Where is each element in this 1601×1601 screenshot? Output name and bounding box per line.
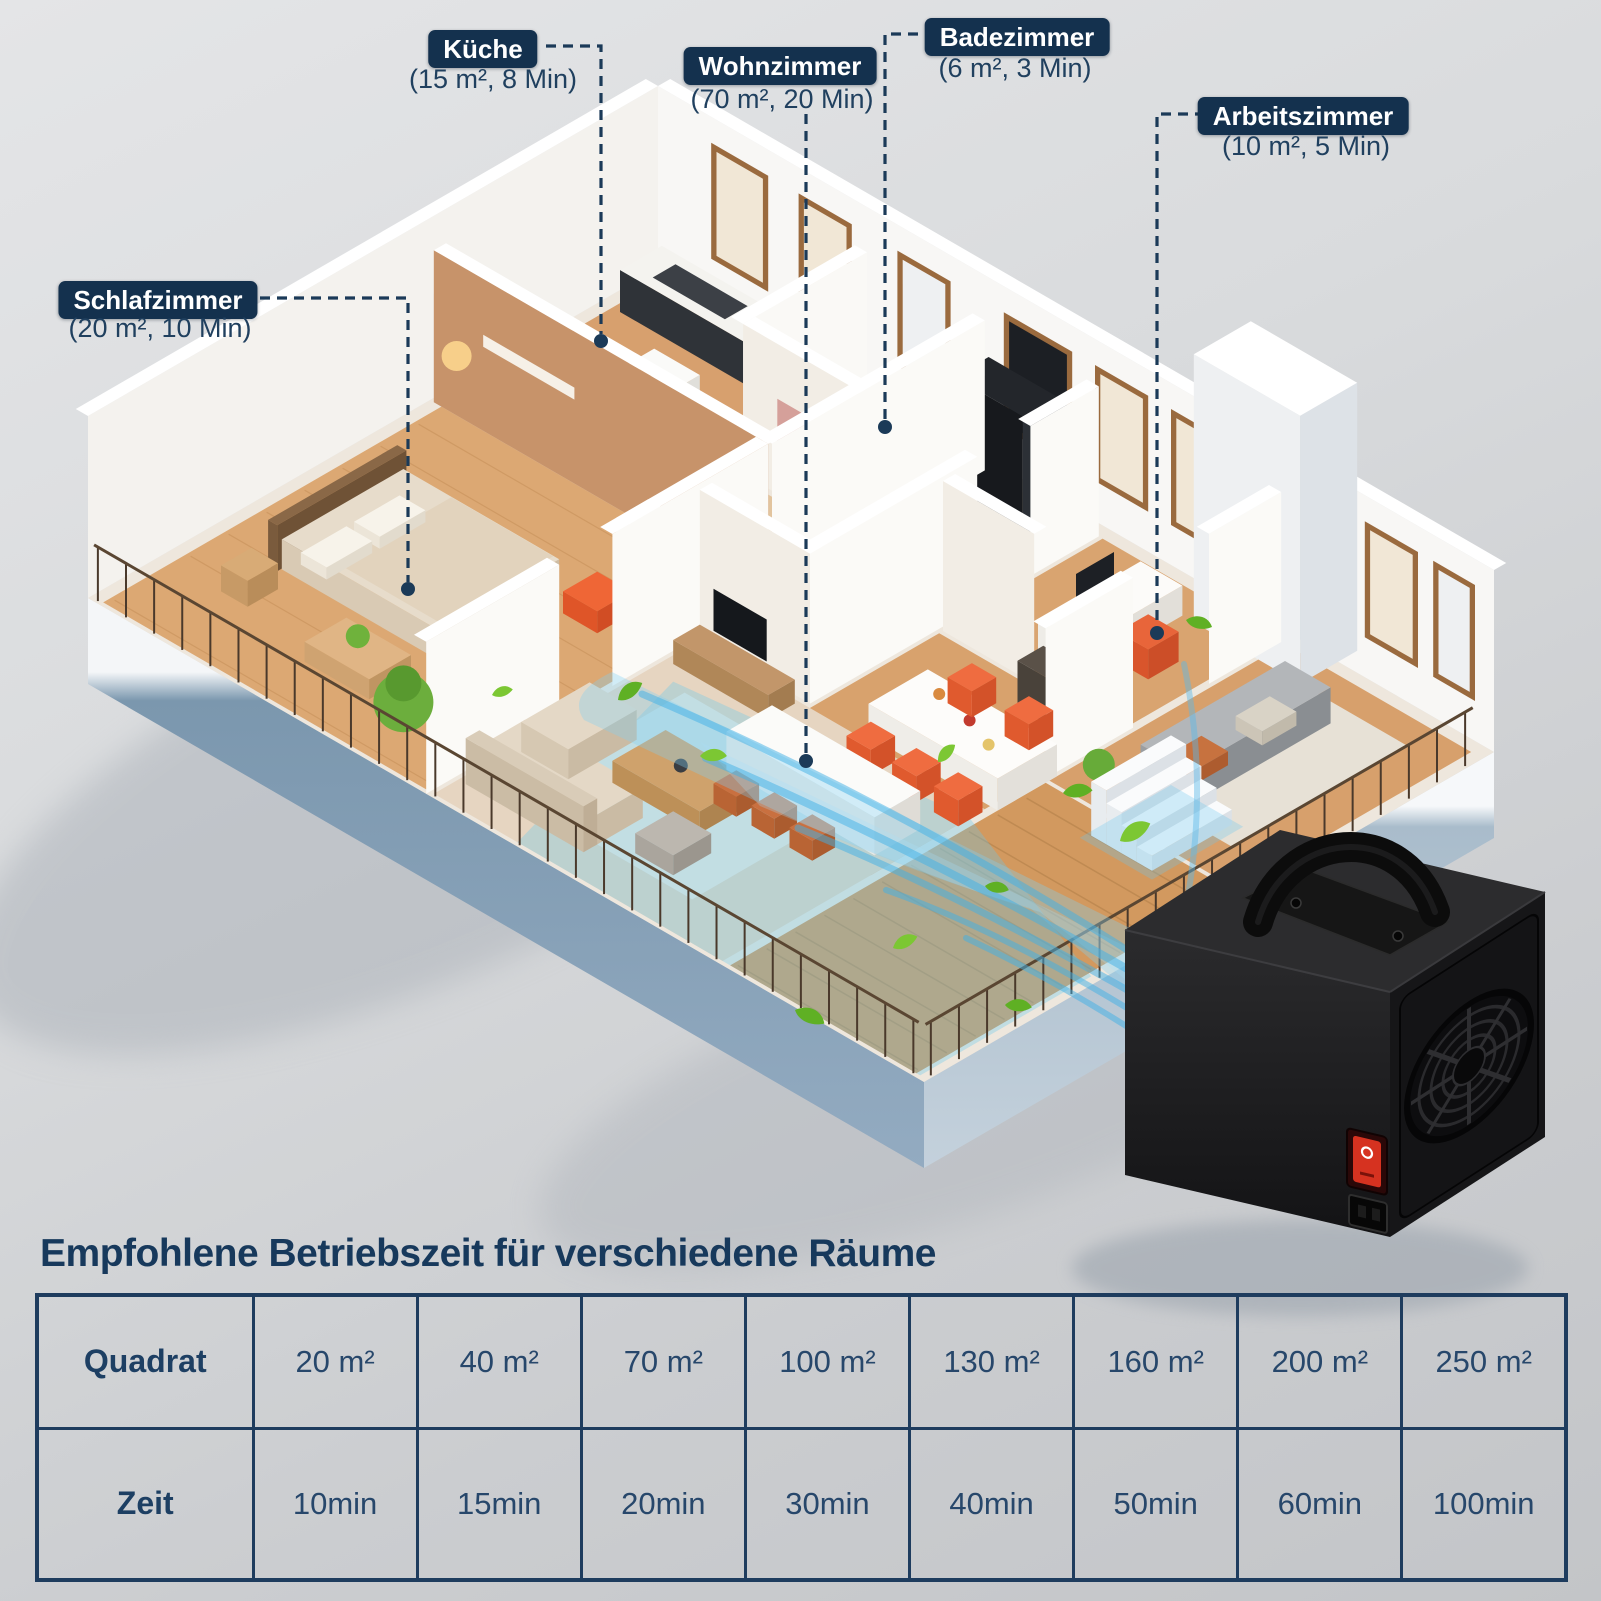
runtime-table: Quadrat 20 m² 40 m² 70 m² 100 m² 130 m² … — [35, 1293, 1568, 1582]
leader-dot-schlafzimmer — [401, 582, 415, 596]
table-cell: 100 m² — [745, 1295, 909, 1428]
leader-dot-wohnzimmer — [799, 754, 813, 768]
room-detail-kueche: (15 m², 8 Min) — [409, 64, 577, 95]
room-detail-badezimmer: (6 m², 3 Min) — [938, 53, 1091, 84]
table-header-quadrat: Quadrat — [37, 1295, 253, 1428]
table-cell: 50min — [1074, 1428, 1238, 1580]
table-cell: 100min — [1402, 1428, 1566, 1580]
table-cell: 15min — [417, 1428, 581, 1580]
room-detail-arbeitszimmer: (10 m², 5 Min) — [1222, 131, 1390, 162]
room-label-arbeitszimmer: Arbeitszimmer — [1198, 97, 1409, 135]
table-header-zeit: Zeit — [37, 1428, 253, 1580]
table-cell: 10min — [253, 1428, 417, 1580]
table-cell: 200 m² — [1238, 1295, 1402, 1428]
room-detail-schlafzimmer: (20 m², 10 Min) — [68, 313, 251, 344]
room-label-badezimmer: Badezimmer — [925, 18, 1110, 56]
ozone-generator-infographic: Küche (15 m², 8 Min) Wohnzimmer (70 m², … — [0, 0, 1601, 1601]
table-cell: 250 m² — [1402, 1295, 1566, 1428]
table-cell: 40min — [910, 1428, 1074, 1580]
table-cell: 160 m² — [1074, 1295, 1238, 1428]
room-detail-wohnzimmer: (70 m², 20 Min) — [690, 84, 873, 115]
leader-dot-arbeitszimmer — [1150, 626, 1164, 640]
room-label-kueche: Küche — [428, 30, 537, 68]
table-cell: 30min — [745, 1428, 909, 1580]
table-cell: 130 m² — [910, 1295, 1074, 1428]
room-label-wohnzimmer: Wohnzimmer — [684, 47, 877, 85]
table-cell: 20min — [581, 1428, 745, 1580]
table-cell: 40 m² — [417, 1295, 581, 1428]
section-heading: Empfohlene Betriebszeit für verschiedene… — [40, 1232, 936, 1276]
table-cell: 70 m² — [581, 1295, 745, 1428]
leader-dot-badezimmer — [878, 420, 892, 434]
table-cell: 60min — [1238, 1428, 1402, 1580]
table-row-quadrat: Quadrat 20 m² 40 m² 70 m² 100 m² 130 m² … — [37, 1295, 1566, 1428]
table-cell: 20 m² — [253, 1295, 417, 1428]
table-row-zeit: Zeit 10min 15min 20min 30min 40min 50min… — [37, 1428, 1566, 1580]
leader-dot-kueche — [594, 334, 608, 348]
